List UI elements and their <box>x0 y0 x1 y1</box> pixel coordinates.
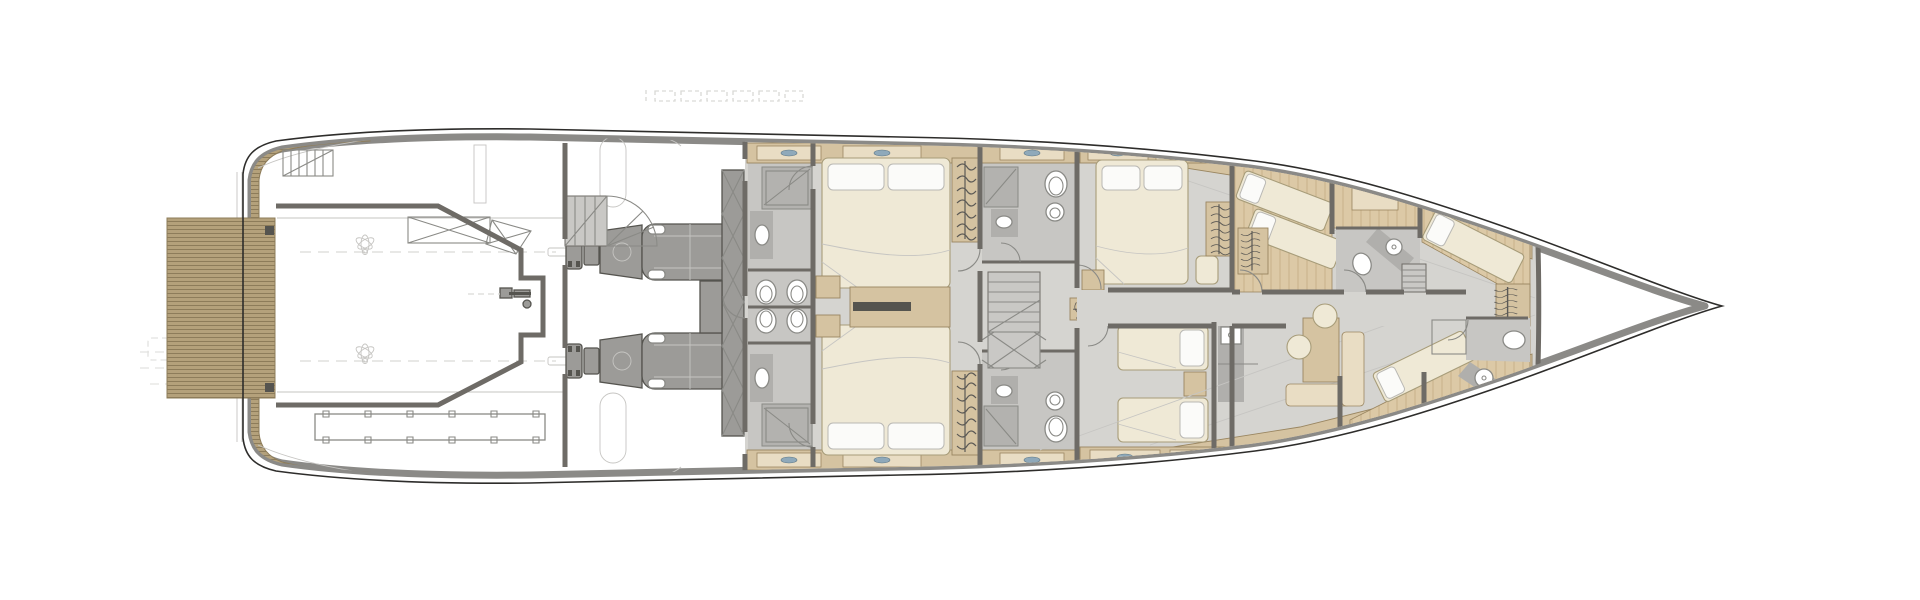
boarding-ladder <box>227 172 240 204</box>
floor-plan-drawing <box>0 0 1920 600</box>
stool <box>1287 335 1311 359</box>
garage-bench <box>315 411 545 443</box>
bench-seat <box>1196 256 1218 284</box>
bidet-icon <box>1046 203 1064 221</box>
pillow <box>888 164 944 190</box>
tv-icon <box>853 302 911 311</box>
cleat <box>265 383 274 392</box>
nightstand <box>816 276 840 298</box>
lobby-staircase <box>982 272 1046 368</box>
pillow <box>1102 166 1140 190</box>
crew-corridor-floor <box>1077 290 1467 326</box>
bidet-icon <box>787 280 807 304</box>
pillow <box>828 164 884 190</box>
toilet-icon <box>1045 171 1067 197</box>
wardrobe <box>1206 202 1232 256</box>
stool <box>1313 304 1337 328</box>
guest-block <box>747 143 1077 470</box>
wardrobe <box>952 158 978 242</box>
nightstand <box>1184 372 1206 396</box>
swim-platform <box>167 218 275 398</box>
ghost-deck-outline-above <box>646 90 803 103</box>
pillow <box>1144 166 1182 190</box>
toilet-icon <box>756 280 776 304</box>
pillow <box>1180 330 1204 366</box>
crew-bathroom <box>1336 228 1426 292</box>
sofa <box>1342 332 1364 406</box>
pillow <box>1180 402 1204 438</box>
crew-drawers <box>1238 228 1268 274</box>
yacht-lower-deck-plan <box>0 0 1920 600</box>
cleat <box>265 226 274 235</box>
